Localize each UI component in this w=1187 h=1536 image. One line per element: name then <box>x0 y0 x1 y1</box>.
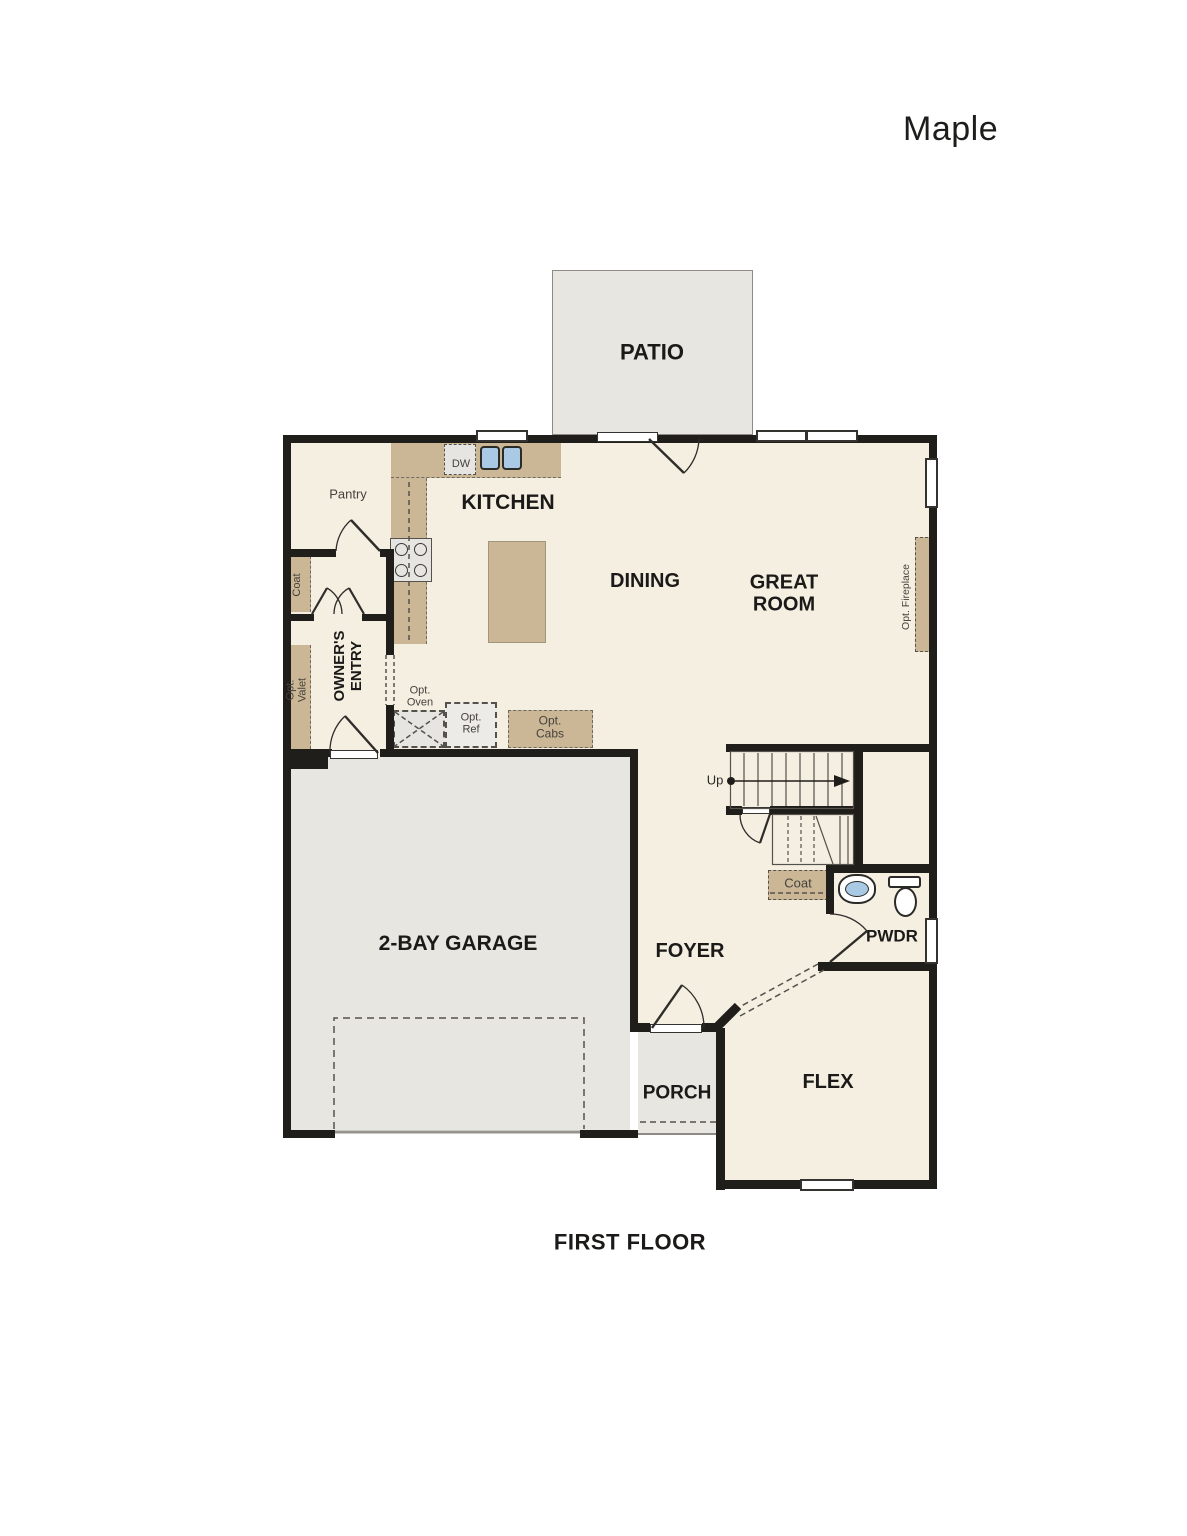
label-dishwasher: DW <box>452 458 470 470</box>
label-garage: 2-BAY GARAGE <box>379 932 538 956</box>
wall-garage-bottom-right <box>580 1130 638 1138</box>
wall-garage-corner-notch <box>291 757 328 769</box>
wall-left-upper <box>283 435 291 757</box>
stove-burner <box>414 564 427 577</box>
wall-kitchen-entry-upper <box>386 549 394 655</box>
wall-garage-divider-left <box>283 749 332 757</box>
label-porch: PORCH <box>643 1082 712 1103</box>
stove-burner <box>414 543 427 556</box>
wall-right <box>929 435 937 1189</box>
wall-coat-bottom-right <box>362 614 392 621</box>
wall-coat-bottom-left <box>283 614 314 621</box>
wall-powder-top <box>826 864 929 873</box>
wall-kitchen-entry-lower <box>386 705 394 757</box>
sill-patio-door <box>597 432 658 442</box>
caption-first-floor: FIRST FLOOR <box>554 1231 706 1256</box>
window-great-room-left <box>756 430 807 442</box>
window-flex <box>800 1179 854 1191</box>
label-opt-ref: Opt. Ref <box>454 712 488 737</box>
label-great-room: GREAT ROOM <box>724 572 844 617</box>
wall-garage-right <box>630 749 638 1032</box>
label-opt-oven: Opt. Oven <box>400 685 440 710</box>
kitchen-sink-basin-right <box>502 446 522 470</box>
label-flex: FLEX <box>802 1071 853 1093</box>
label-foyer: FOYER <box>656 940 725 962</box>
label-dining: DINING <box>610 570 680 592</box>
sill-owners-entry-door <box>330 750 378 759</box>
powder-sink-bowl <box>845 881 869 897</box>
sill-front-door <box>650 1024 702 1033</box>
label-opt-fireplace: Opt. Fireplace <box>901 564 913 630</box>
wall-powder-bottom <box>818 962 937 971</box>
wall-powder-left <box>826 864 834 914</box>
label-opt-valet: Opt. Valet <box>285 673 310 707</box>
powder-sink <box>838 874 876 904</box>
window-powder <box>925 918 938 964</box>
wall-stairs-top <box>726 744 929 752</box>
label-pwdr: PWDR <box>866 926 918 945</box>
stove-burner <box>395 564 408 577</box>
kitchen-island <box>488 541 546 643</box>
kitchen-counter-top <box>391 442 561 478</box>
optional-oven <box>393 710 445 748</box>
window-great-room-side <box>925 458 938 508</box>
plan-title: Maple <box>903 110 998 149</box>
label-patio: PATIO <box>620 341 684 366</box>
wall-stairs-mid-right <box>770 806 856 815</box>
wall-stairs-mid-left <box>726 806 742 815</box>
kitchen-sink-basin-left <box>480 446 500 470</box>
floor-plan-page: Maple PATIO Pantry KITCHEN DW DINING GRE… <box>0 0 1187 1536</box>
wall-flex-left <box>716 1028 725 1190</box>
label-opt-cabs: Opt. Cabs <box>527 715 573 742</box>
wall-pantry-bottom-left <box>283 549 336 557</box>
wall-left-garage <box>283 749 291 1138</box>
label-owners-entry: OWNER'S ENTRY <box>332 614 366 718</box>
stove <box>390 538 432 582</box>
wall-porch-top-left <box>630 1023 650 1032</box>
window-kitchen <box>476 430 528 442</box>
label-up: Up <box>707 774 724 789</box>
sill-understair-door <box>742 807 770 814</box>
label-pantry: Pantry <box>329 488 367 503</box>
toilet-bowl <box>894 887 917 917</box>
label-coat-entry: Coat <box>291 573 303 596</box>
label-kitchen: KITCHEN <box>461 491 554 515</box>
wall-garage-divider-right <box>380 749 638 757</box>
window-great-room-right <box>806 430 858 442</box>
stove-burner <box>395 543 408 556</box>
label-coat-stairs: Coat <box>784 877 811 892</box>
wall-garage-bottom-left <box>283 1130 335 1138</box>
